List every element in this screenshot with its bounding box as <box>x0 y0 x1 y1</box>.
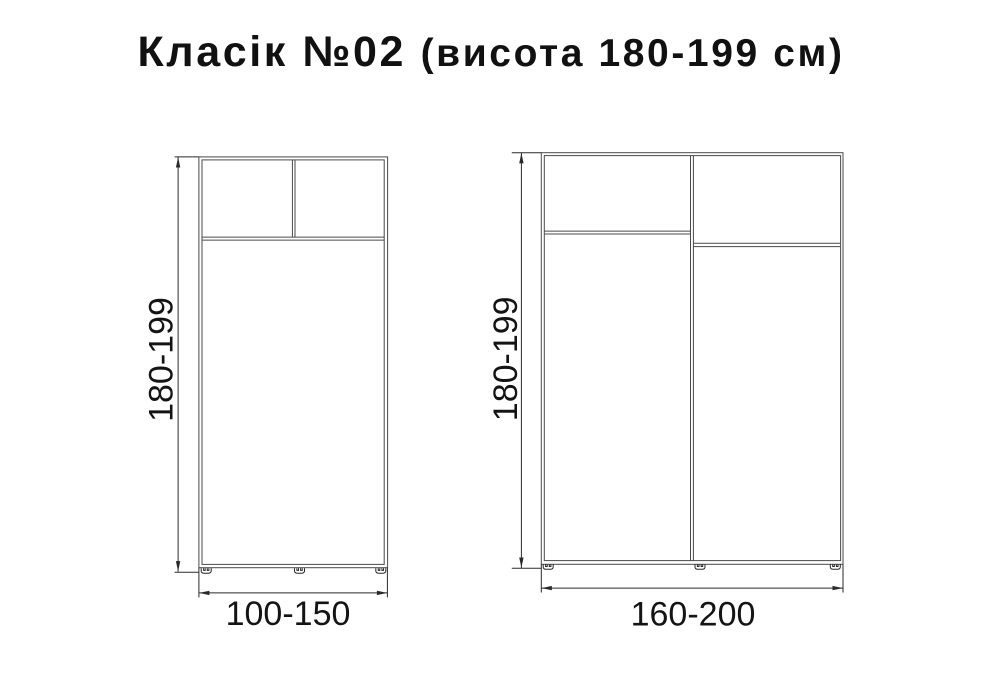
svg-text:160-200: 160-200 <box>631 596 756 634</box>
svg-text:Класік №02 (висота 180-199 см): Класік №02 (висота 180-199 см) <box>137 28 844 76</box>
svg-text:180-199: 180-199 <box>143 297 181 422</box>
svg-text:100-150: 100-150 <box>226 595 351 633</box>
svg-text:180-199: 180-199 <box>487 296 525 421</box>
